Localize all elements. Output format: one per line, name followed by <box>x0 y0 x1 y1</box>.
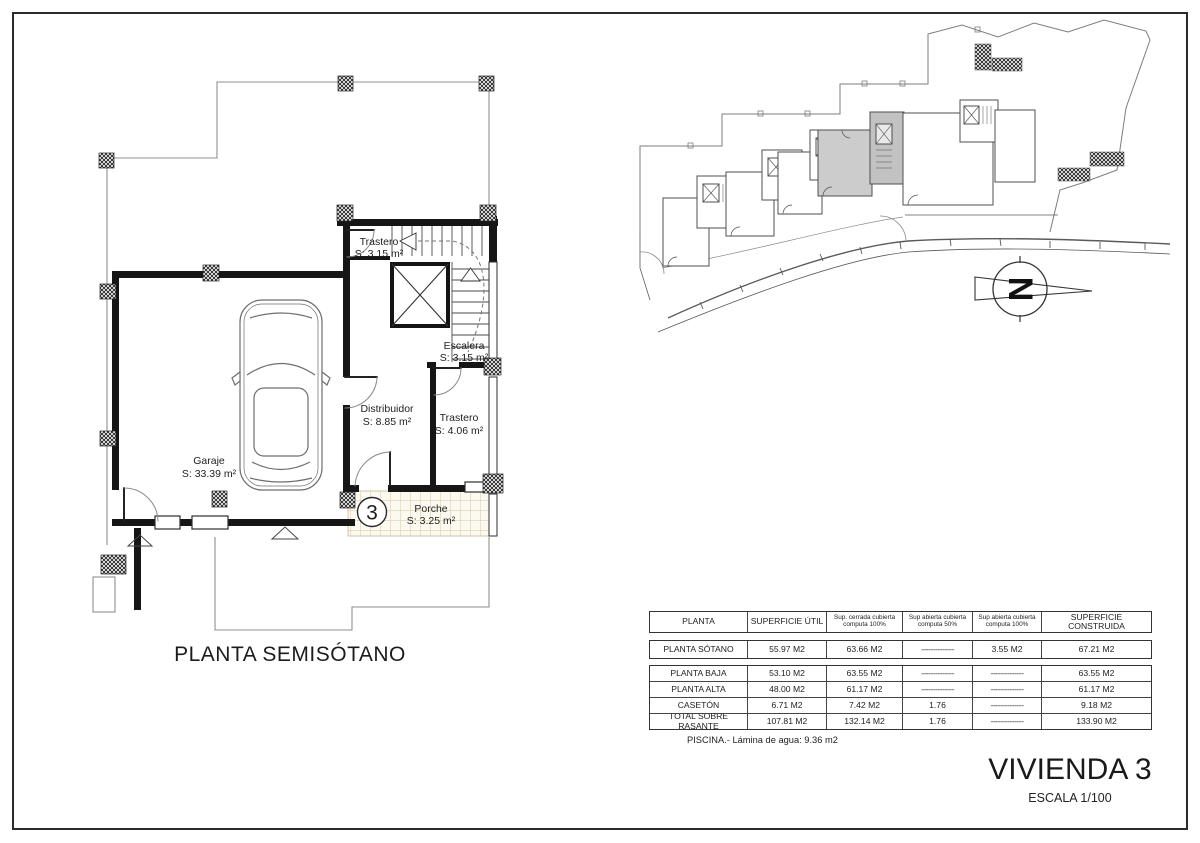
table-cell: -------------- <box>903 641 973 658</box>
table-header-cell: PLANTA <box>650 612 748 632</box>
room-area-distribuidor: S: 8.85 m² <box>363 416 412 428</box>
table-cell: 63.66 M2 <box>827 641 903 658</box>
room-label-trastero-alto: Trastero <box>360 236 399 248</box>
table-header-cell: SUPERFICIE ÚTIL <box>748 612 827 632</box>
areas-table-header: PLANTA SUPERFICIE ÚTIL Sup. cerrada cubi… <box>649 611 1152 633</box>
table-header-cell: Sup. cerrada cubierta computa 100% <box>827 612 903 632</box>
room-label-distribuidor: Distribuidor <box>360 403 414 415</box>
table-cell: 55.97 M2 <box>748 641 827 658</box>
car-top-view <box>232 300 330 490</box>
floor-plan: 3 Trastero S: 3.15 m² Escalera S: 3.15 m… <box>93 76 503 630</box>
site-plan: N <box>640 20 1170 332</box>
table-cell: CASETÓN <box>650 698 748 714</box>
house-units <box>663 44 1124 266</box>
room-area-trastero-alto: S: 3.15 m² <box>355 248 404 260</box>
room-area-trastero-bajo: S: 4.06 m² <box>435 425 484 437</box>
room-label-escalera: Escalera <box>444 340 485 352</box>
north-letter: N <box>1001 277 1039 302</box>
project-title: VIVIENDA 3 <box>945 753 1195 787</box>
north-arrow: N <box>975 256 1092 322</box>
table-cell: 132.14 M2 <box>827 714 903 729</box>
table-cell: -------------- <box>973 666 1042 682</box>
table-cell: 9.18 M2 <box>1042 698 1151 714</box>
site-unit-6 <box>975 44 1124 182</box>
upper-floor-outline <box>93 82 489 630</box>
table-cell: 3.55 M2 <box>973 641 1042 658</box>
areas-table: PLANTA SUPERFICIE ÚTIL Sup. cerrada cubi… <box>649 611 1152 745</box>
access-markers <box>128 527 298 546</box>
right-facade-windows <box>489 262 497 536</box>
table-cell: 63.55 M2 <box>827 666 903 682</box>
table-cell: 133.90 M2 <box>1042 714 1151 729</box>
room-label-porche: Porche <box>414 503 447 515</box>
table-rows-rasante: PLANTA BAJA 53.10 M2 63.55 M2 ----------… <box>649 665 1152 730</box>
table-cell: PLANTA BAJA <box>650 666 748 682</box>
unit-number: 3 <box>366 502 378 525</box>
room-label-garaje: Garaje <box>193 455 225 467</box>
room-area-garaje: S: 33.39 m² <box>182 468 237 480</box>
table-cell: -------------- <box>903 666 973 682</box>
plan-title: PLANTA SEMISÓTANO <box>150 643 430 667</box>
table-cell: -------------- <box>973 698 1042 714</box>
room-area-porche: S: 3.25 m² <box>407 515 456 527</box>
room-area-escalera: S: 3.15 m² <box>440 352 489 364</box>
table-cell: 61.17 M2 <box>1042 682 1151 698</box>
table-cell: -------------- <box>973 682 1042 698</box>
table-cell: -------------- <box>903 682 973 698</box>
table-cell: 7.42 M2 <box>827 698 903 714</box>
table-cell: 53.10 M2 <box>748 666 827 682</box>
road-curves <box>640 215 1170 332</box>
table-header-cell: Sup abierta cubierta computa 100% <box>973 612 1042 632</box>
table-header-cell: SUPERFICIE CONSTRUIDA <box>1042 612 1151 632</box>
table-header-cell: Sup abierta cubierta computa 50% <box>903 612 973 632</box>
table-cell: 107.81 M2 <box>748 714 827 729</box>
table-cell: -------------- <box>973 714 1042 729</box>
pool-footnote: PISCINA.- Lámina de agua: 9.36 m2 <box>687 735 1152 745</box>
elevator-shaft <box>392 264 448 326</box>
table-cell: TOTAL SOBRE RASANTE <box>650 714 748 729</box>
table-cell: 6.71 M2 <box>748 698 827 714</box>
table-cell: PLANTA ALTA <box>650 682 748 698</box>
table-cell: 63.55 M2 <box>1042 666 1151 682</box>
table-cell: 61.17 M2 <box>827 682 903 698</box>
drawing-sheet: 3 Trastero S: 3.15 m² Escalera S: 3.15 m… <box>0 0 1200 843</box>
unit-number-badge: 3 <box>358 498 387 527</box>
table-cell: 1.76 <box>903 714 973 729</box>
site-unit-5 <box>903 100 998 205</box>
stairs-upper <box>392 226 482 256</box>
table-cell: 67.21 M2 <box>1042 641 1151 658</box>
table-cell: PLANTA SÓTANO <box>650 641 748 658</box>
table-row-sotano: PLANTA SÓTANO 55.97 M2 63.66 M2 --------… <box>649 640 1152 659</box>
table-cell: 1.76 <box>903 698 973 714</box>
scale-label: ESCALA 1/100 <box>945 791 1195 805</box>
site-unit-3-highlighted <box>818 112 904 196</box>
table-cell: 48.00 M2 <box>748 682 827 698</box>
room-label-trastero-bajo: Trastero <box>440 412 479 424</box>
